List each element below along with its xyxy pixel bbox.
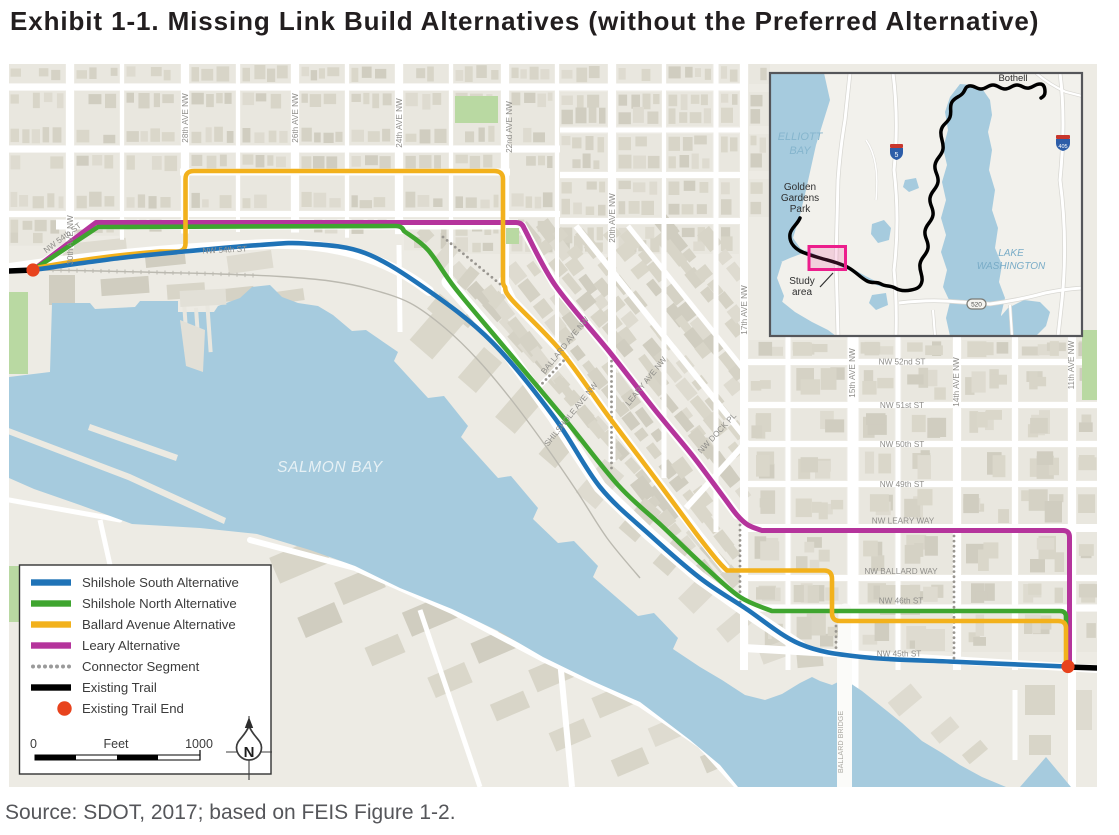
svg-text:20th AVE NW: 20th AVE NW	[608, 193, 617, 243]
svg-text:Gardens: Gardens	[781, 193, 819, 204]
svg-text:Golden: Golden	[784, 182, 816, 193]
svg-text:NW 49th ST: NW 49th ST	[880, 480, 925, 489]
svg-text:15th AVE NW: 15th AVE NW	[848, 348, 857, 398]
svg-text:Existing Trail: Existing Trail	[82, 680, 157, 695]
svg-text:24th AVE NW: 24th AVE NW	[395, 98, 404, 148]
svg-text:11th AVE NW: 11th AVE NW	[1067, 340, 1076, 389]
svg-text:NW 52nd ST: NW 52nd ST	[879, 358, 926, 367]
svg-text:BALLARD BRIDGE: BALLARD BRIDGE	[836, 711, 845, 774]
svg-text:Ballard Avenue Alternative: Ballard Avenue Alternative	[82, 617, 236, 632]
svg-text:SALMON BAY: SALMON BAY	[277, 459, 384, 476]
svg-text:LAKE: LAKE	[998, 248, 1024, 259]
svg-text:17th AVE NW: 17th AVE NW	[740, 285, 749, 335]
svg-text:Shilshole North Alternative: Shilshole North Alternative	[82, 596, 237, 611]
svg-text:Feet: Feet	[103, 737, 129, 751]
svg-text:NW 46th ST: NW 46th ST	[879, 597, 924, 606]
svg-text:Existing Trail End: Existing Trail End	[82, 701, 184, 716]
svg-text:NW 50th ST: NW 50th ST	[880, 440, 925, 449]
svg-text:N: N	[244, 744, 255, 761]
svg-text:405: 405	[1058, 144, 1067, 150]
svg-text:Leary Alternative: Leary Alternative	[82, 638, 180, 653]
svg-text:0: 0	[30, 737, 37, 751]
svg-text:22nd AVE NW: 22nd AVE NW	[505, 101, 514, 153]
svg-text:NW LEARY WAY: NW LEARY WAY	[872, 517, 935, 526]
svg-text:Park: Park	[790, 204, 812, 215]
svg-text:ELLIOTT: ELLIOTT	[778, 131, 824, 143]
svg-text:NW BALLARD WAY: NW BALLARD WAY	[864, 567, 938, 576]
svg-text:Connector Segment: Connector Segment	[82, 659, 200, 674]
svg-text:1000: 1000	[185, 737, 213, 751]
svg-text:area: area	[792, 287, 812, 298]
svg-text:14th AVE NW: 14th AVE NW	[952, 357, 961, 407]
svg-text:5: 5	[895, 152, 899, 159]
svg-text:Study: Study	[789, 276, 815, 287]
svg-text:WASHINGTON: WASHINGTON	[977, 261, 1046, 272]
svg-text:28th AVE NW: 28th AVE NW	[181, 93, 190, 143]
svg-text:Shilshole South Alternative: Shilshole South Alternative	[82, 575, 239, 590]
svg-text:NW 45th ST: NW 45th ST	[877, 650, 922, 659]
svg-text:BAY: BAY	[789, 145, 811, 157]
svg-text:26th AVE NW: 26th AVE NW	[291, 93, 300, 143]
svg-text:520: 520	[971, 302, 982, 309]
svg-text:Bothell: Bothell	[998, 73, 1027, 84]
svg-text:NW 51st ST: NW 51st ST	[880, 401, 924, 410]
